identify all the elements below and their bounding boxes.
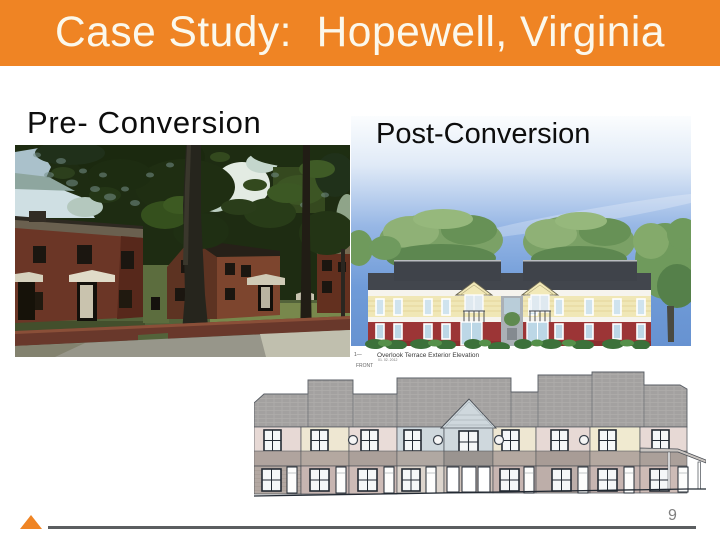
svg-text:1—: 1— [354,352,362,358]
svg-text:01. 02. 2012: 01. 02. 2012 [378,358,398,361]
svg-text:FRONT: FRONT [356,363,373,369]
